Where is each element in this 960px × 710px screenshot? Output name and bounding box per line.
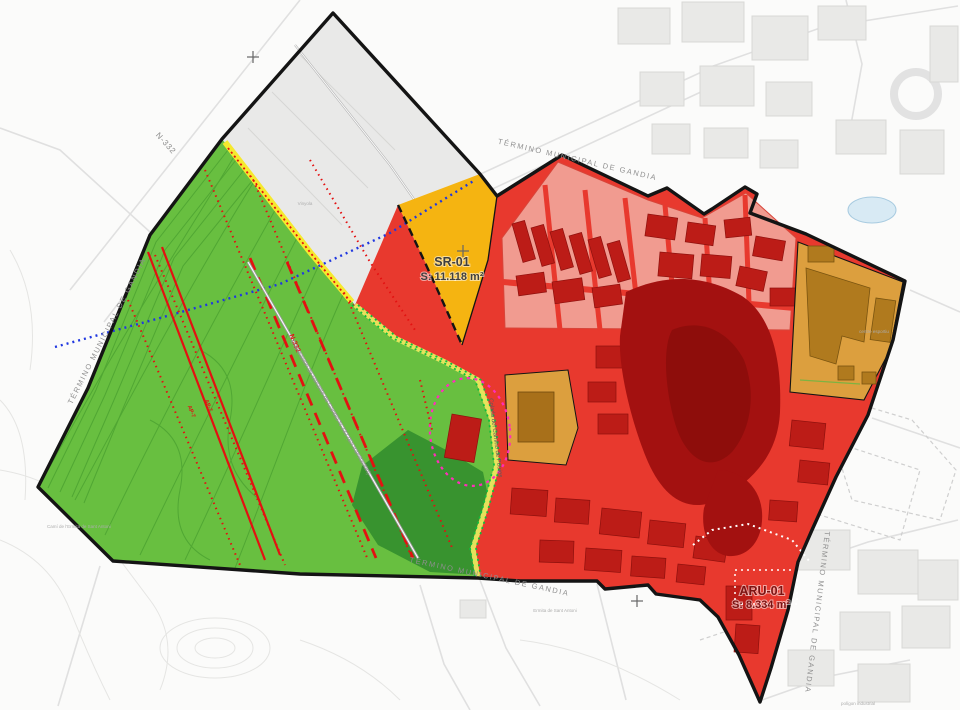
building — [760, 140, 798, 168]
place-label-cami-ermita: Camí de l'Ermita de Sant Antoni — [47, 524, 111, 529]
building — [752, 16, 808, 60]
building — [518, 392, 554, 442]
building — [808, 246, 834, 262]
building — [685, 222, 716, 246]
building — [640, 72, 684, 106]
building — [858, 550, 918, 594]
building — [766, 82, 812, 116]
building — [631, 556, 666, 578]
building — [840, 612, 890, 650]
building — [734, 624, 760, 654]
zone-label-sr01-code: SR-01 — [434, 255, 469, 269]
building — [588, 382, 616, 402]
place-label-ermita: Ermita de Sant Antoni — [533, 608, 577, 613]
building — [770, 288, 796, 306]
building — [930, 26, 958, 82]
building — [700, 254, 732, 279]
building — [510, 488, 548, 516]
building — [592, 284, 623, 308]
building — [599, 508, 641, 538]
building — [858, 664, 910, 702]
building — [704, 128, 748, 158]
zoning-map: TÉRMINO MUNICIPAL DE GANDIA TÉRMINO MUNI… — [0, 0, 960, 710]
zone-label-aru01-code: ARU-01 — [739, 584, 784, 598]
zone-label-sr01-area: S: 11.118 m² — [421, 271, 484, 283]
building — [516, 272, 547, 296]
building — [789, 420, 826, 449]
building — [676, 564, 706, 585]
building — [798, 460, 830, 485]
building — [652, 124, 690, 154]
building — [647, 520, 685, 548]
building — [724, 217, 752, 238]
place-label-partida: Vinyola — [298, 201, 313, 206]
building — [700, 66, 754, 106]
building — [836, 120, 886, 154]
building — [900, 130, 944, 174]
building — [598, 414, 628, 434]
building — [769, 500, 798, 522]
building — [902, 606, 950, 648]
building — [539, 540, 574, 563]
pond — [848, 197, 896, 223]
building — [554, 498, 590, 524]
building — [818, 6, 866, 40]
building — [645, 214, 678, 240]
zone-label-aru01-area: S: 8.334 m² — [732, 599, 790, 611]
building — [552, 278, 585, 304]
building — [918, 560, 958, 600]
building — [618, 8, 670, 44]
place-label-poligon-industrial: polígon industrial — [841, 701, 875, 706]
place-label-centre-esportiu: centre esportiu — [859, 329, 889, 334]
building — [838, 366, 854, 380]
planning-map-canvas: TÉRMINO MUNICIPAL DE GANDIA TÉRMINO MUNI… — [0, 0, 960, 710]
building — [584, 548, 621, 572]
building — [682, 2, 744, 42]
building — [658, 252, 694, 279]
building — [862, 372, 876, 384]
ermita-building — [460, 600, 486, 618]
